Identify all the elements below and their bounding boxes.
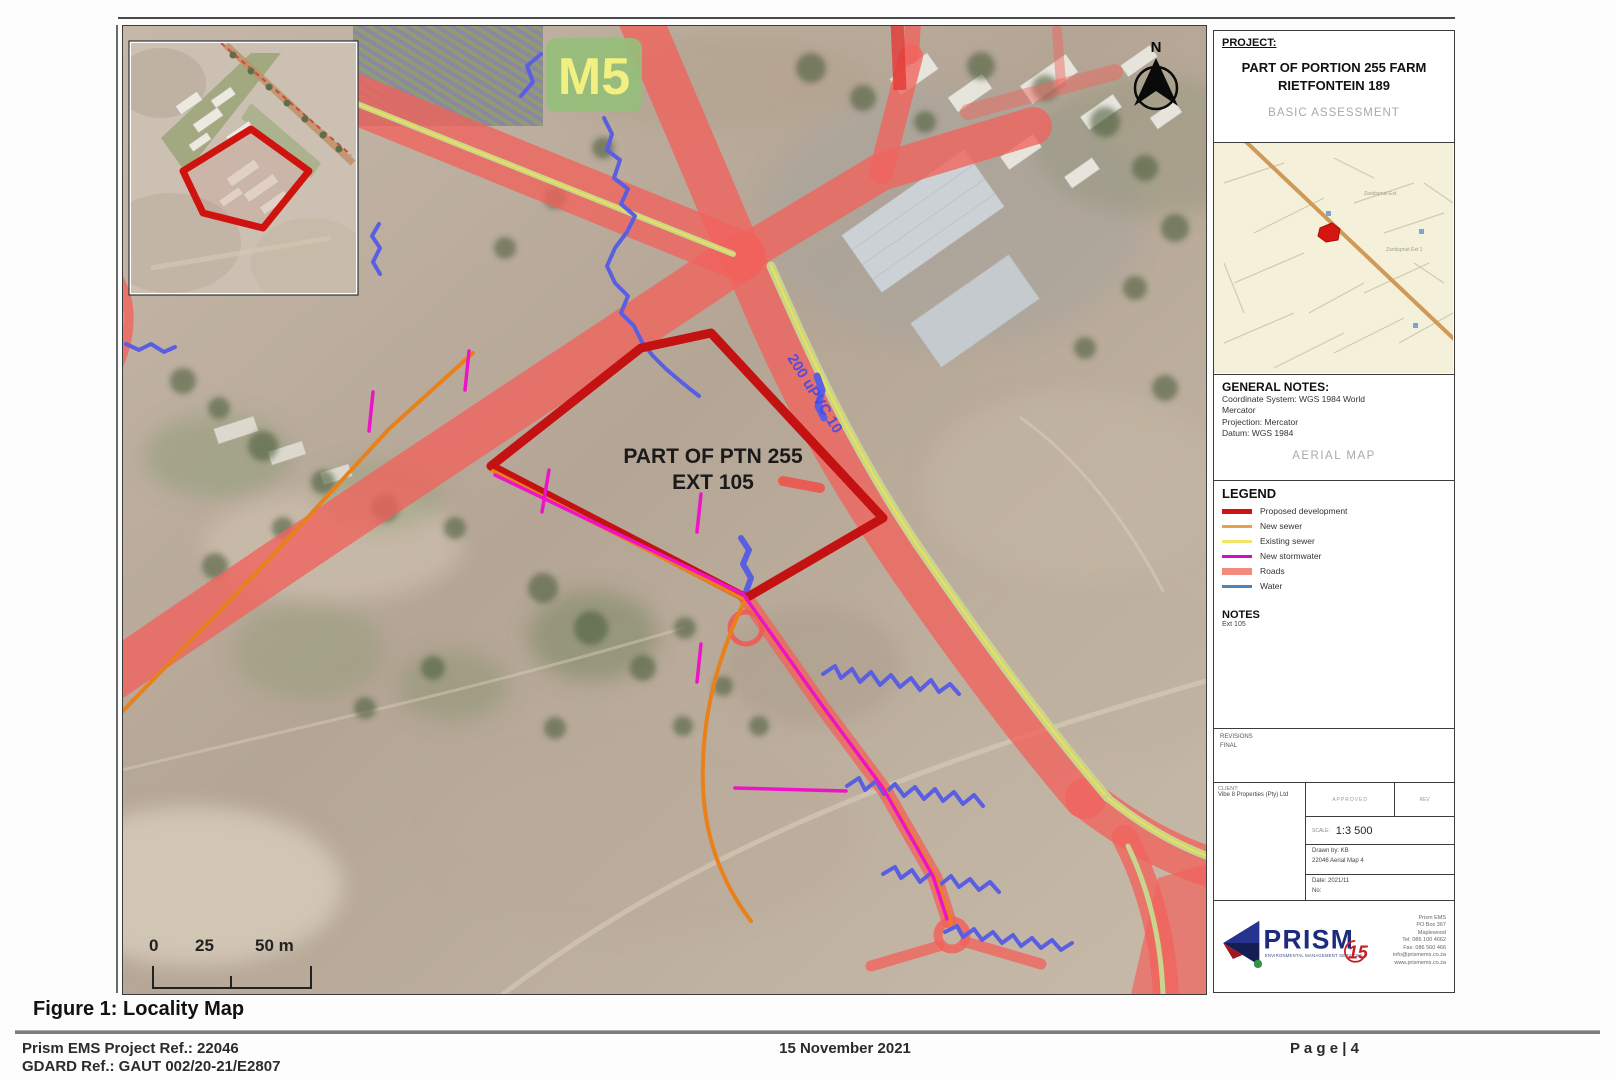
inset-label-2: Zandspruit Ext 1 <box>1386 247 1423 253</box>
top-rule-line <box>118 17 1455 19</box>
legend-swatch-existing-sewer <box>1222 540 1252 543</box>
date-row: Date: 2021/11 No: <box>1306 875 1454 900</box>
footer-divider <box>15 1030 1600 1034</box>
notes-heading: NOTES <box>1222 609 1446 621</box>
north-label: N <box>1151 39 1162 56</box>
inset-label-1: Zandspruit Ext <box>1364 191 1397 197</box>
footer-gdard-ref: GDARD Ref.: GAUT 002/20-21/E2807 <box>22 1058 280 1075</box>
titleblock-grid: CLIENT: Vibe 8 Properties (Pty) Ltd APPR… <box>1214 783 1454 901</box>
map-frame-accent-line <box>116 25 118 993</box>
prism-wordmark: PRISM <box>1264 925 1355 955</box>
approval-row: APPROVED REV <box>1306 783 1454 817</box>
general-notes-box: GENERAL NOTES: Coordinate System: WGS 19… <box>1214 375 1454 481</box>
legend-swatch-water <box>1222 585 1252 588</box>
site-label-line1: PART OF PTN 255 <box>623 445 803 468</box>
project-box: PROJECT: PART OF PORTION 255 FARM RIETFO… <box>1214 31 1454 143</box>
aerial-map-canvas: M5 PART OF PTN 255 EXT 105 200 uPVC 10 0… <box>123 26 1206 994</box>
site-label-line2: EXT 105 <box>672 471 754 494</box>
legend-swatch-proposed-development <box>1222 509 1252 514</box>
scale-row: SCALE: 1:3 500 <box>1306 817 1454 845</box>
client-cell: CLIENT: Vibe 8 Properties (Pty) Ltd <box>1214 783 1306 900</box>
project-subtitle: BASIC ASSESSMENT <box>1222 107 1446 119</box>
site-plan-inset <box>123 41 371 308</box>
legend-item: Proposed development <box>1222 506 1446 516</box>
figure-caption: Figure 1: Locality Map <box>33 998 244 1021</box>
m5-route-marker: M5 <box>546 38 642 112</box>
legend-swatch-new-sewer <box>1222 525 1252 528</box>
footer-page-number: P a g e | 4 <box>1290 1040 1359 1057</box>
legend-item: New stormwater <box>1222 551 1446 561</box>
scale-tick-25: 25 <box>195 936 214 955</box>
project-heading: PROJECT: <box>1222 37 1446 49</box>
scale-value: 1:3 500 <box>1336 825 1373 837</box>
map-type-subtitle: AERIAL MAP <box>1222 450 1446 462</box>
titleblock-right: APPROVED REV SCALE: 1:3 500 Drawn by: KB… <box>1306 783 1454 900</box>
footer-project-ref: Prism EMS Project Ref.: 22046 <box>22 1040 239 1057</box>
legend-box: LEGEND Proposed development New sewer Ex… <box>1214 481 1454 729</box>
locality-inset-box: Zandspruit Ext Zandspruit Ext 1 <box>1214 143 1454 375</box>
document-page: M5 PART OF PTN 255 EXT 105 200 uPVC 10 0… <box>0 0 1615 1080</box>
locality-street-map: Zandspruit Ext Zandspruit Ext 1 <box>1214 143 1453 373</box>
legend-swatch-new-stormwater <box>1222 555 1252 558</box>
prism-logo-box: PRISM ENVIRONMENTAL MANAGEMENT SERVICES … <box>1214 901 1454 987</box>
footer-date: 15 November 2021 <box>779 1040 911 1057</box>
prism-badge: 15 <box>1348 942 1369 962</box>
scale-tick-50: 50 m <box>255 936 294 955</box>
project-title: PART OF PORTION 255 FARM RIETFONTEIN 189 <box>1222 59 1446 94</box>
prism-logo: PRISM ENVIRONMENTAL MANAGEMENT SERVICES … <box>1219 904 1379 982</box>
m5-label: M5 <box>558 48 630 106</box>
legend-item: Roads <box>1222 566 1446 576</box>
legend-item: Existing sewer <box>1222 536 1446 546</box>
prism-address: Prism EMS PO Box 367 Maplewood Tel: 086 … <box>1393 915 1446 967</box>
legend-swatch-roads <box>1222 568 1252 575</box>
notes-text: Ext 105 <box>1222 621 1446 628</box>
drawn-by-row: Drawn by: KB 22046 Aerial Map 4 <box>1306 845 1454 875</box>
title-block-panel: PROJECT: PART OF PORTION 255 FARM RIETFO… <box>1213 30 1455 993</box>
legend-heading: LEGEND <box>1222 486 1446 501</box>
road-stub <box>783 481 820 488</box>
scale-tick-0: 0 <box>149 936 158 955</box>
legend-item: New sewer <box>1222 521 1446 531</box>
legend-item: Water <box>1222 581 1446 591</box>
general-notes-heading: GENERAL NOTES: <box>1222 380 1446 394</box>
locality-map: M5 PART OF PTN 255 EXT 105 200 uPVC 10 0… <box>122 25 1207 995</box>
revisions-box: REVISIONS FINAL <box>1214 729 1454 783</box>
road-strip-top <box>897 26 900 90</box>
